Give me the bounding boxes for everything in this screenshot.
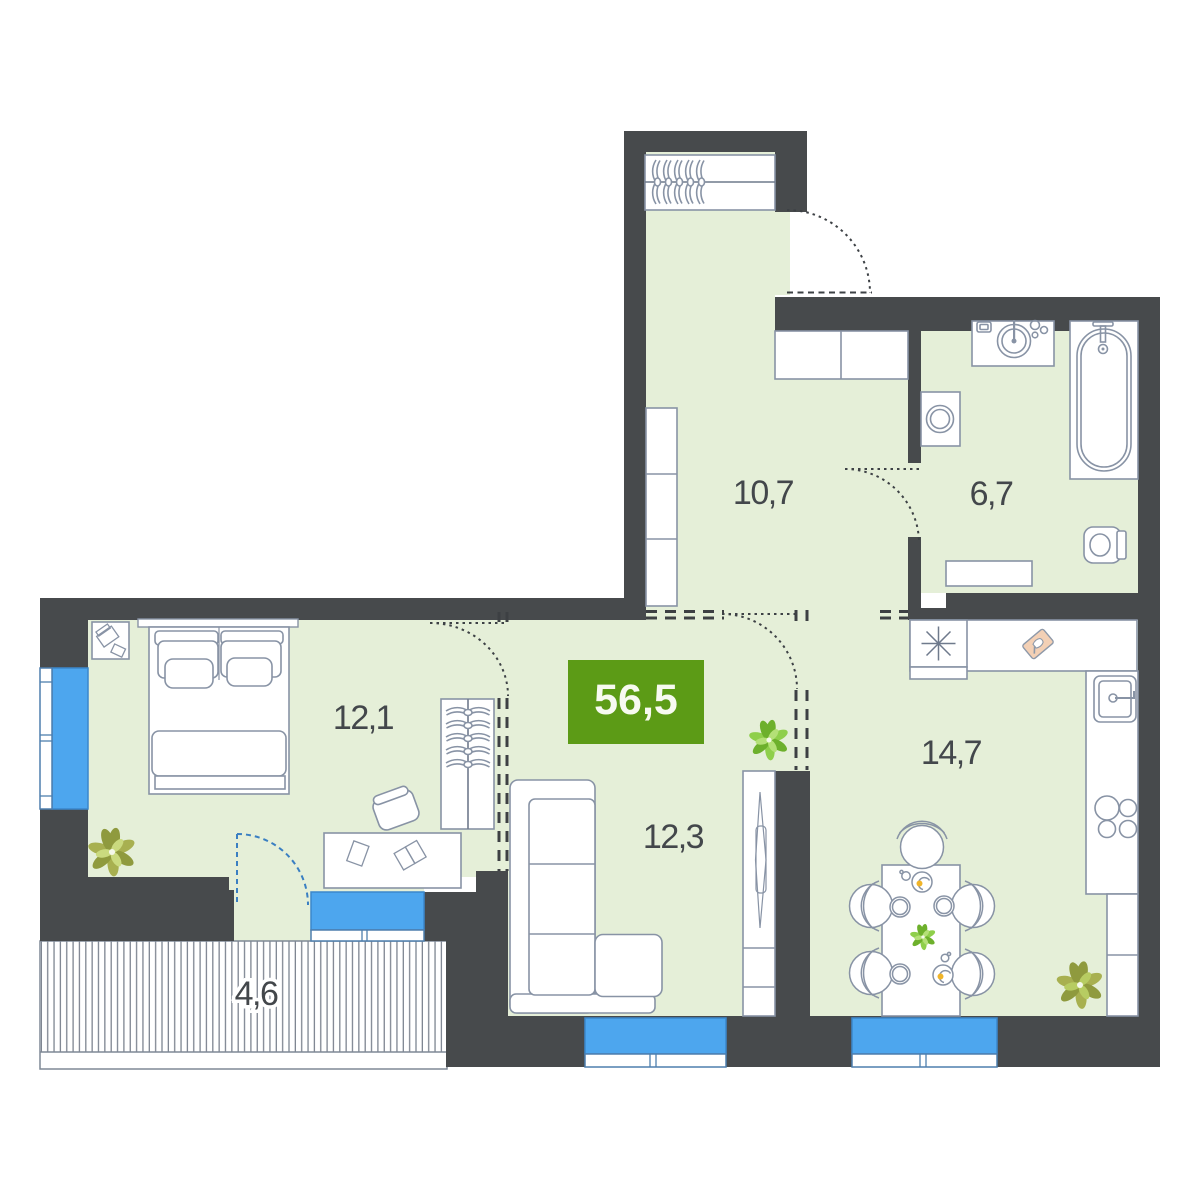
svg-text:12,1: 12,1: [333, 699, 394, 737]
svg-text:4,6: 4,6: [235, 975, 278, 1013]
svg-text:12,3: 12,3: [643, 818, 704, 856]
svg-text:56,5: 56,5: [594, 676, 678, 724]
svg-text:10,7: 10,7: [733, 474, 794, 512]
svg-text:6,7: 6,7: [970, 475, 1013, 513]
svg-text:14,7: 14,7: [921, 734, 982, 772]
